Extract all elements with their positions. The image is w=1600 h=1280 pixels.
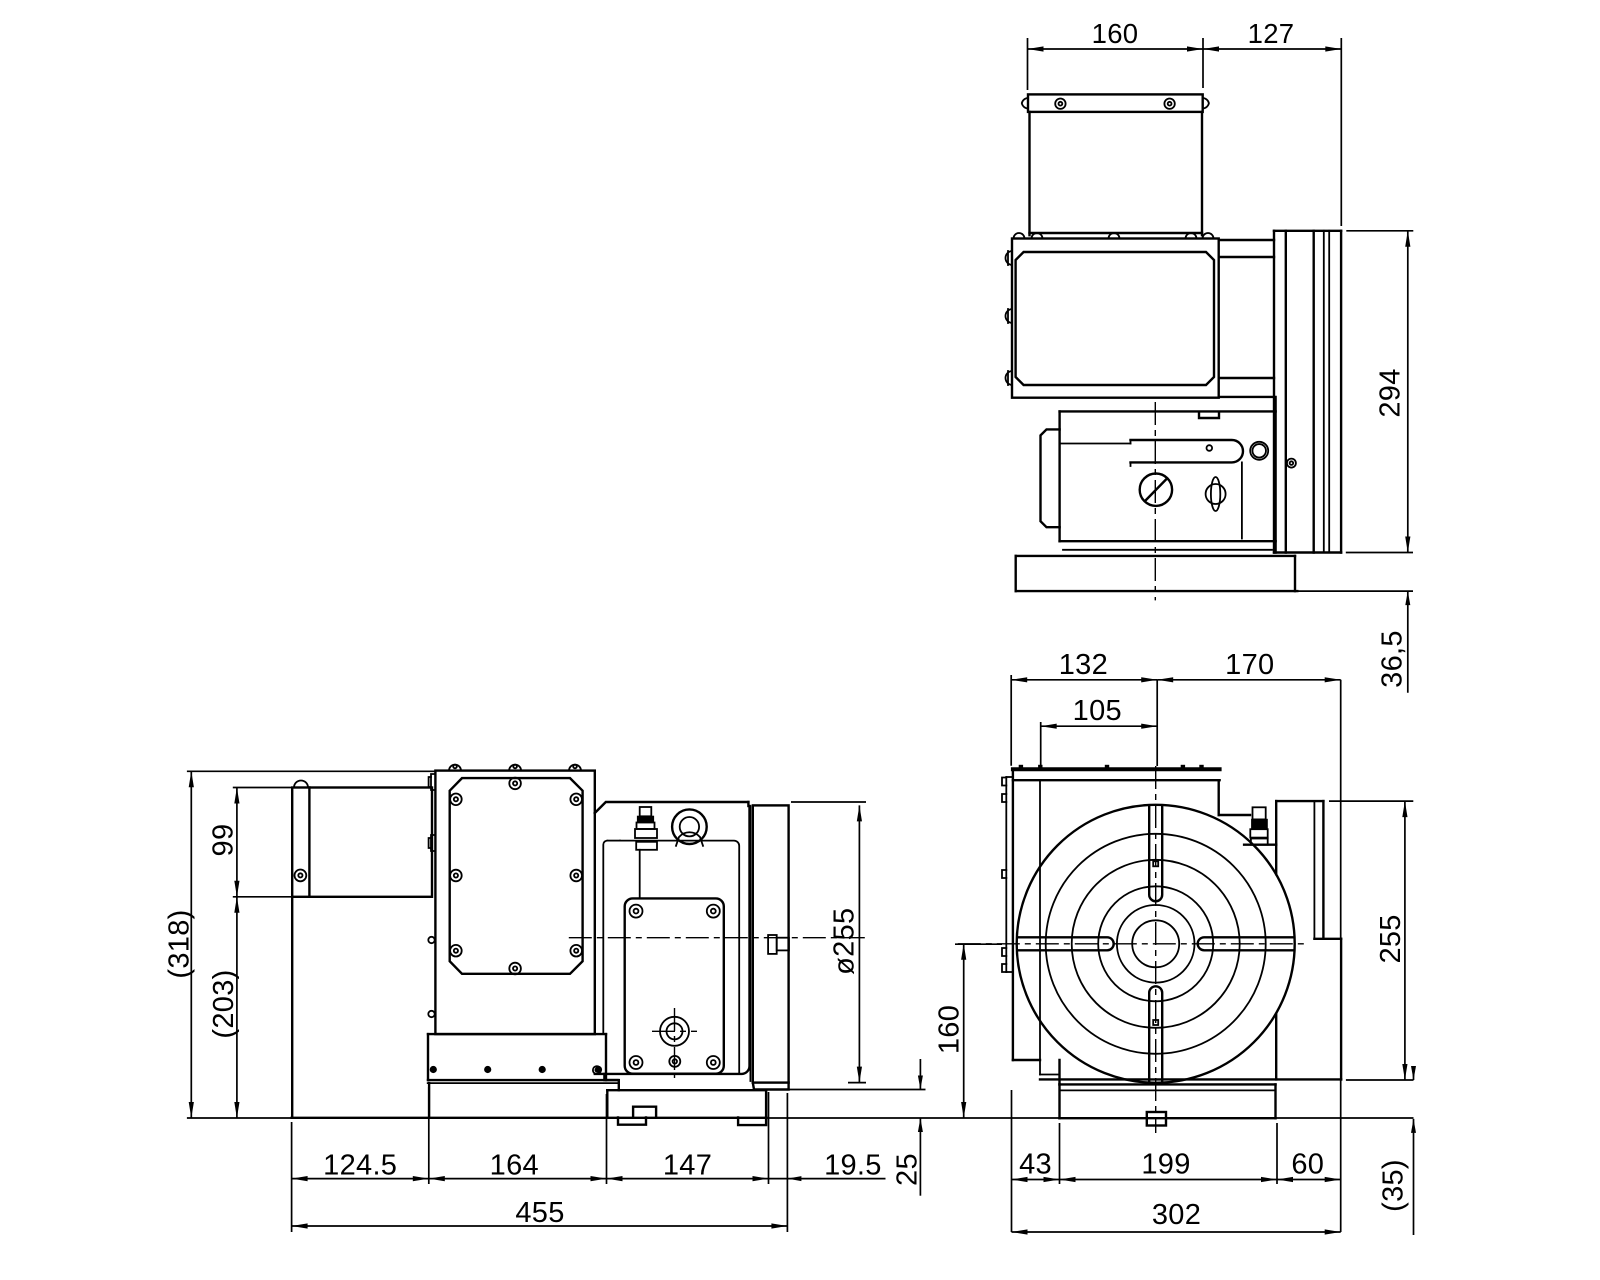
svg-text:105: 105 — [1073, 695, 1122, 727]
svg-text:132: 132 — [1059, 649, 1108, 681]
svg-text:ø255: ø255 — [829, 908, 861, 975]
svg-text:170: 170 — [1225, 649, 1274, 681]
svg-text:99: 99 — [207, 824, 239, 857]
svg-text:(318): (318) — [163, 909, 195, 978]
svg-text:147: 147 — [663, 1149, 712, 1181]
svg-text:124.5: 124.5 — [323, 1149, 397, 1181]
svg-text:199: 199 — [1141, 1148, 1190, 1180]
svg-text:60: 60 — [1291, 1148, 1324, 1180]
svg-text:164: 164 — [490, 1149, 539, 1181]
svg-text:(35): (35) — [1377, 1159, 1409, 1212]
svg-text:43: 43 — [1019, 1148, 1052, 1180]
svg-text:25: 25 — [891, 1153, 923, 1186]
svg-text:255: 255 — [1375, 914, 1407, 963]
svg-text:294: 294 — [1374, 368, 1406, 417]
svg-text:127: 127 — [1248, 18, 1295, 49]
svg-text:302: 302 — [1152, 1199, 1201, 1231]
svg-text:36,5: 36,5 — [1376, 630, 1408, 688]
svg-text:19.5: 19.5 — [824, 1149, 882, 1181]
svg-text:160: 160 — [933, 1005, 965, 1054]
svg-text:455: 455 — [515, 1197, 564, 1229]
svg-text:(203): (203) — [208, 969, 240, 1038]
svg-text:160: 160 — [1092, 18, 1139, 49]
